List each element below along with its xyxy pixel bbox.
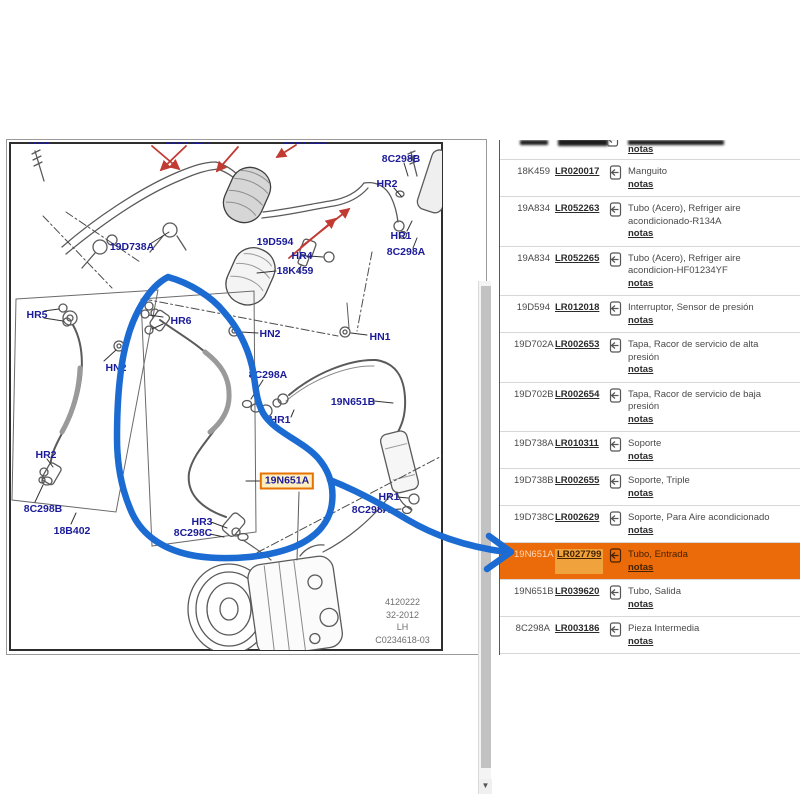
notes-link[interactable]: notas: [628, 636, 653, 649]
notes-transfer-icon: [607, 437, 623, 463]
notes-link[interactable]: notas: [628, 562, 653, 575]
notes-link[interactable]: notas: [628, 179, 653, 192]
part-location-code: 18K459: [514, 166, 550, 191]
drawing-number-line: 4120222: [355, 596, 450, 609]
drawing-number-line: 32-2012: [355, 609, 450, 622]
notes-link[interactable]: notas: [628, 228, 653, 241]
part-description-cell: Tubo (Acero), Refriger aire acondicion-H…: [628, 253, 792, 291]
diagram-scrollbar[interactable]: ▼: [478, 281, 491, 794]
parts-catalog-page: ▼: [0, 0, 800, 800]
notes-transfer-icon: [604, 140, 619, 147]
notes-link[interactable]: notas: [628, 525, 653, 538]
part-number-link[interactable]: LR020017: [555, 166, 599, 191]
part-location-code: 19A834: [514, 253, 550, 291]
notes-transfer-icon: [607, 585, 623, 611]
part-description-cell: Soporte notas: [628, 438, 792, 463]
table-row[interactable]: 8C298A LR003186 Pieza Intermedia notas: [500, 617, 800, 654]
part-description: Soporte, Triple: [628, 475, 784, 488]
notes-transfer-icon: [607, 622, 623, 648]
table-row[interactable]: 19A834 LR052263 Tubo (Acero), Refriger a…: [500, 197, 800, 247]
part-number-link[interactable]: LR003186: [555, 623, 599, 648]
part-description-cell: Tapa, Racor de servicio de baja presión …: [628, 389, 792, 427]
notes-transfer-icon: [607, 548, 623, 574]
table-row[interactable]: 19D738B LR002655 Soporte, Triple notas: [500, 469, 800, 506]
part-description-cell: Manguito notas: [628, 166, 792, 191]
part-description: Tubo, Entrada: [628, 549, 784, 562]
notes-transfer-icon: [607, 252, 623, 291]
obscured-text: [520, 140, 548, 145]
part-location-code: 19D702A: [514, 339, 550, 377]
table-row[interactable]: 19D738C LR002629 Soporte, Para Aire acon…: [500, 506, 800, 543]
part-location-code: 19A834: [514, 203, 550, 241]
table-row[interactable]: 19D702A LR002653 Tapa, Racor de servicio…: [500, 333, 800, 383]
part-number-link[interactable]: LR052265: [555, 253, 599, 291]
part-description-cell: Soporte, Para Aire acondicionado notas: [628, 512, 792, 537]
part-description: Soporte: [628, 438, 784, 451]
part-location-code: 19D702B: [514, 389, 550, 427]
part-location-code: 19D738B: [514, 475, 550, 500]
table-row[interactable]: 19A834 LR052265 Tubo (Acero), Refriger a…: [500, 247, 800, 297]
table-row[interactable]: 19N651B LR039620 Tubo, Salida notas: [500, 580, 800, 617]
part-description-cell: Soporte, Triple notas: [628, 475, 792, 500]
part-description-cell: Pieza Intermedia notas: [628, 623, 792, 648]
notes-link[interactable]: notas: [628, 144, 653, 155]
part-description: Tapa, Racor de servicio de baja presión: [628, 389, 784, 414]
notes-transfer-icon: [607, 165, 623, 191]
notes-transfer-icon: [607, 474, 623, 500]
notes-transfer-icon: [607, 338, 623, 377]
part-description: Pieza Intermedia: [628, 623, 784, 636]
table-row[interactable]: 19D702B LR002654 Tapa, Racor de servicio…: [500, 383, 800, 433]
part-description-cell: Tubo, Entrada notas: [628, 549, 792, 574]
part-description-cell: Tapa, Racor de servicio de alta presión …: [628, 339, 792, 377]
notes-link[interactable]: notas: [628, 414, 653, 427]
table-row-clipped[interactable]: notas: [500, 140, 800, 160]
notes-link[interactable]: notas: [628, 315, 653, 328]
part-description-cell: Tubo, Salida notas: [628, 586, 792, 611]
table-row[interactable]: 19D738A LR010311 Soporte notas: [500, 432, 800, 469]
notes-link[interactable]: notas: [628, 488, 653, 501]
part-description: Manguito: [628, 166, 784, 179]
part-location-code: 19N651B: [514, 586, 550, 611]
part-description-cell: Tubo (Acero), Refriger aire acondicionad…: [628, 203, 792, 241]
part-number-link[interactable]: LR002655: [555, 475, 599, 500]
part-description: Soporte, Para Aire acondicionado: [628, 512, 784, 525]
part-description-cell: Interruptor, Sensor de presión notas: [628, 302, 792, 327]
notes-transfer-icon: [607, 202, 623, 241]
scroll-down-icon[interactable]: ▼: [479, 779, 492, 794]
part-number-link[interactable]: LR002654: [555, 389, 599, 427]
part-number-link[interactable]: LR010311: [555, 438, 599, 463]
part-number-link[interactable]: LR027799: [555, 549, 603, 574]
part-description: Tubo (Acero), Refriger aire acondicionad…: [628, 203, 784, 228]
drawing-number-line: LH: [355, 621, 450, 634]
notes-link[interactable]: notas: [628, 278, 653, 291]
part-location-code: 19N651A: [514, 549, 550, 574]
parts-table-body: notas 18K459 LR020017 Manguito notas 19A…: [500, 140, 800, 654]
table-row[interactable]: 19N651A LR027799 Tubo, Entrada notas: [500, 543, 800, 580]
part-location-code: 19D594: [514, 302, 550, 327]
part-number-link[interactable]: LR012018: [555, 302, 599, 327]
notes-transfer-icon: [607, 511, 623, 537]
part-number-link[interactable]: LR002629: [555, 512, 599, 537]
notes-link[interactable]: notas: [628, 599, 653, 612]
part-number-link[interactable]: LR039620: [555, 586, 599, 611]
notes-link[interactable]: notas: [628, 451, 653, 464]
part-number-link[interactable]: LR052263: [555, 203, 599, 241]
part-description: Tubo, Salida: [628, 586, 784, 599]
part-location-code: 19D738C: [514, 512, 550, 537]
table-row[interactable]: 18K459 LR020017 Manguito notas: [500, 160, 800, 197]
part-location-code: 19D738A: [514, 438, 550, 463]
part-description: Tubo (Acero), Refriger aire acondicion-H…: [628, 253, 784, 278]
part-description: Tapa, Racor de servicio de alta presión: [628, 339, 784, 364]
part-location-code: 8C298A: [514, 623, 550, 648]
notes-transfer-icon: [607, 301, 623, 327]
obscured-text: [558, 140, 608, 146]
table-row[interactable]: 19D594 LR012018 Interruptor, Sensor de p…: [500, 296, 800, 333]
scrollbar-thumb[interactable]: [481, 286, 491, 768]
notes-link[interactable]: notas: [628, 364, 653, 377]
part-description: Interruptor, Sensor de presión: [628, 302, 784, 315]
notes-transfer-icon: [607, 388, 623, 427]
part-number-link[interactable]: LR002653: [555, 339, 599, 377]
diagram-footer: 412022232-2012LHC0234618-03: [355, 596, 450, 646]
diagram-frame: [9, 142, 443, 651]
drawing-number-line: C0234618-03: [355, 634, 450, 647]
